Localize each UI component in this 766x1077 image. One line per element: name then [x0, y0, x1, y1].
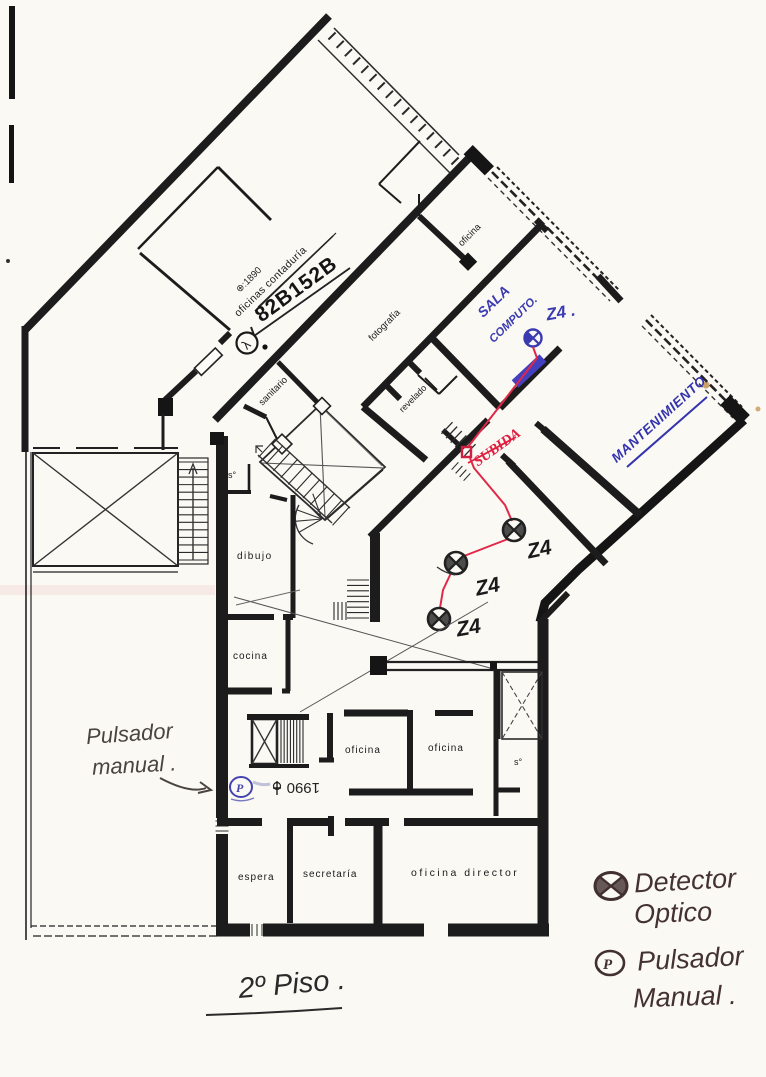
- svg-text:espera: espera: [238, 872, 275, 883]
- svg-text:s°: s°: [228, 470, 237, 480]
- svg-text:dibujo: dibujo: [237, 551, 273, 562]
- svg-text:Z4: Z4: [454, 614, 483, 641]
- svg-text:1990: 1990: [287, 779, 320, 796]
- svg-text:s°: s°: [514, 757, 523, 767]
- svg-text:P: P: [236, 781, 244, 795]
- svg-text:cocina: cocina: [233, 651, 268, 662]
- svg-text:oficina: oficina: [345, 745, 381, 756]
- svg-text:oficina: oficina: [428, 743, 464, 754]
- svg-text:oficina director: oficina director: [411, 867, 519, 879]
- svg-text:Optico: Optico: [633, 897, 712, 930]
- svg-text:manual .: manual .: [91, 750, 177, 779]
- svg-text:secretaría: secretaría: [303, 869, 357, 880]
- svg-text:Manual .: Manual .: [633, 980, 738, 1014]
- svg-text:P: P: [603, 957, 613, 973]
- svg-text:Pulsador: Pulsador: [636, 941, 745, 977]
- svg-text:Detector: Detector: [633, 863, 737, 898]
